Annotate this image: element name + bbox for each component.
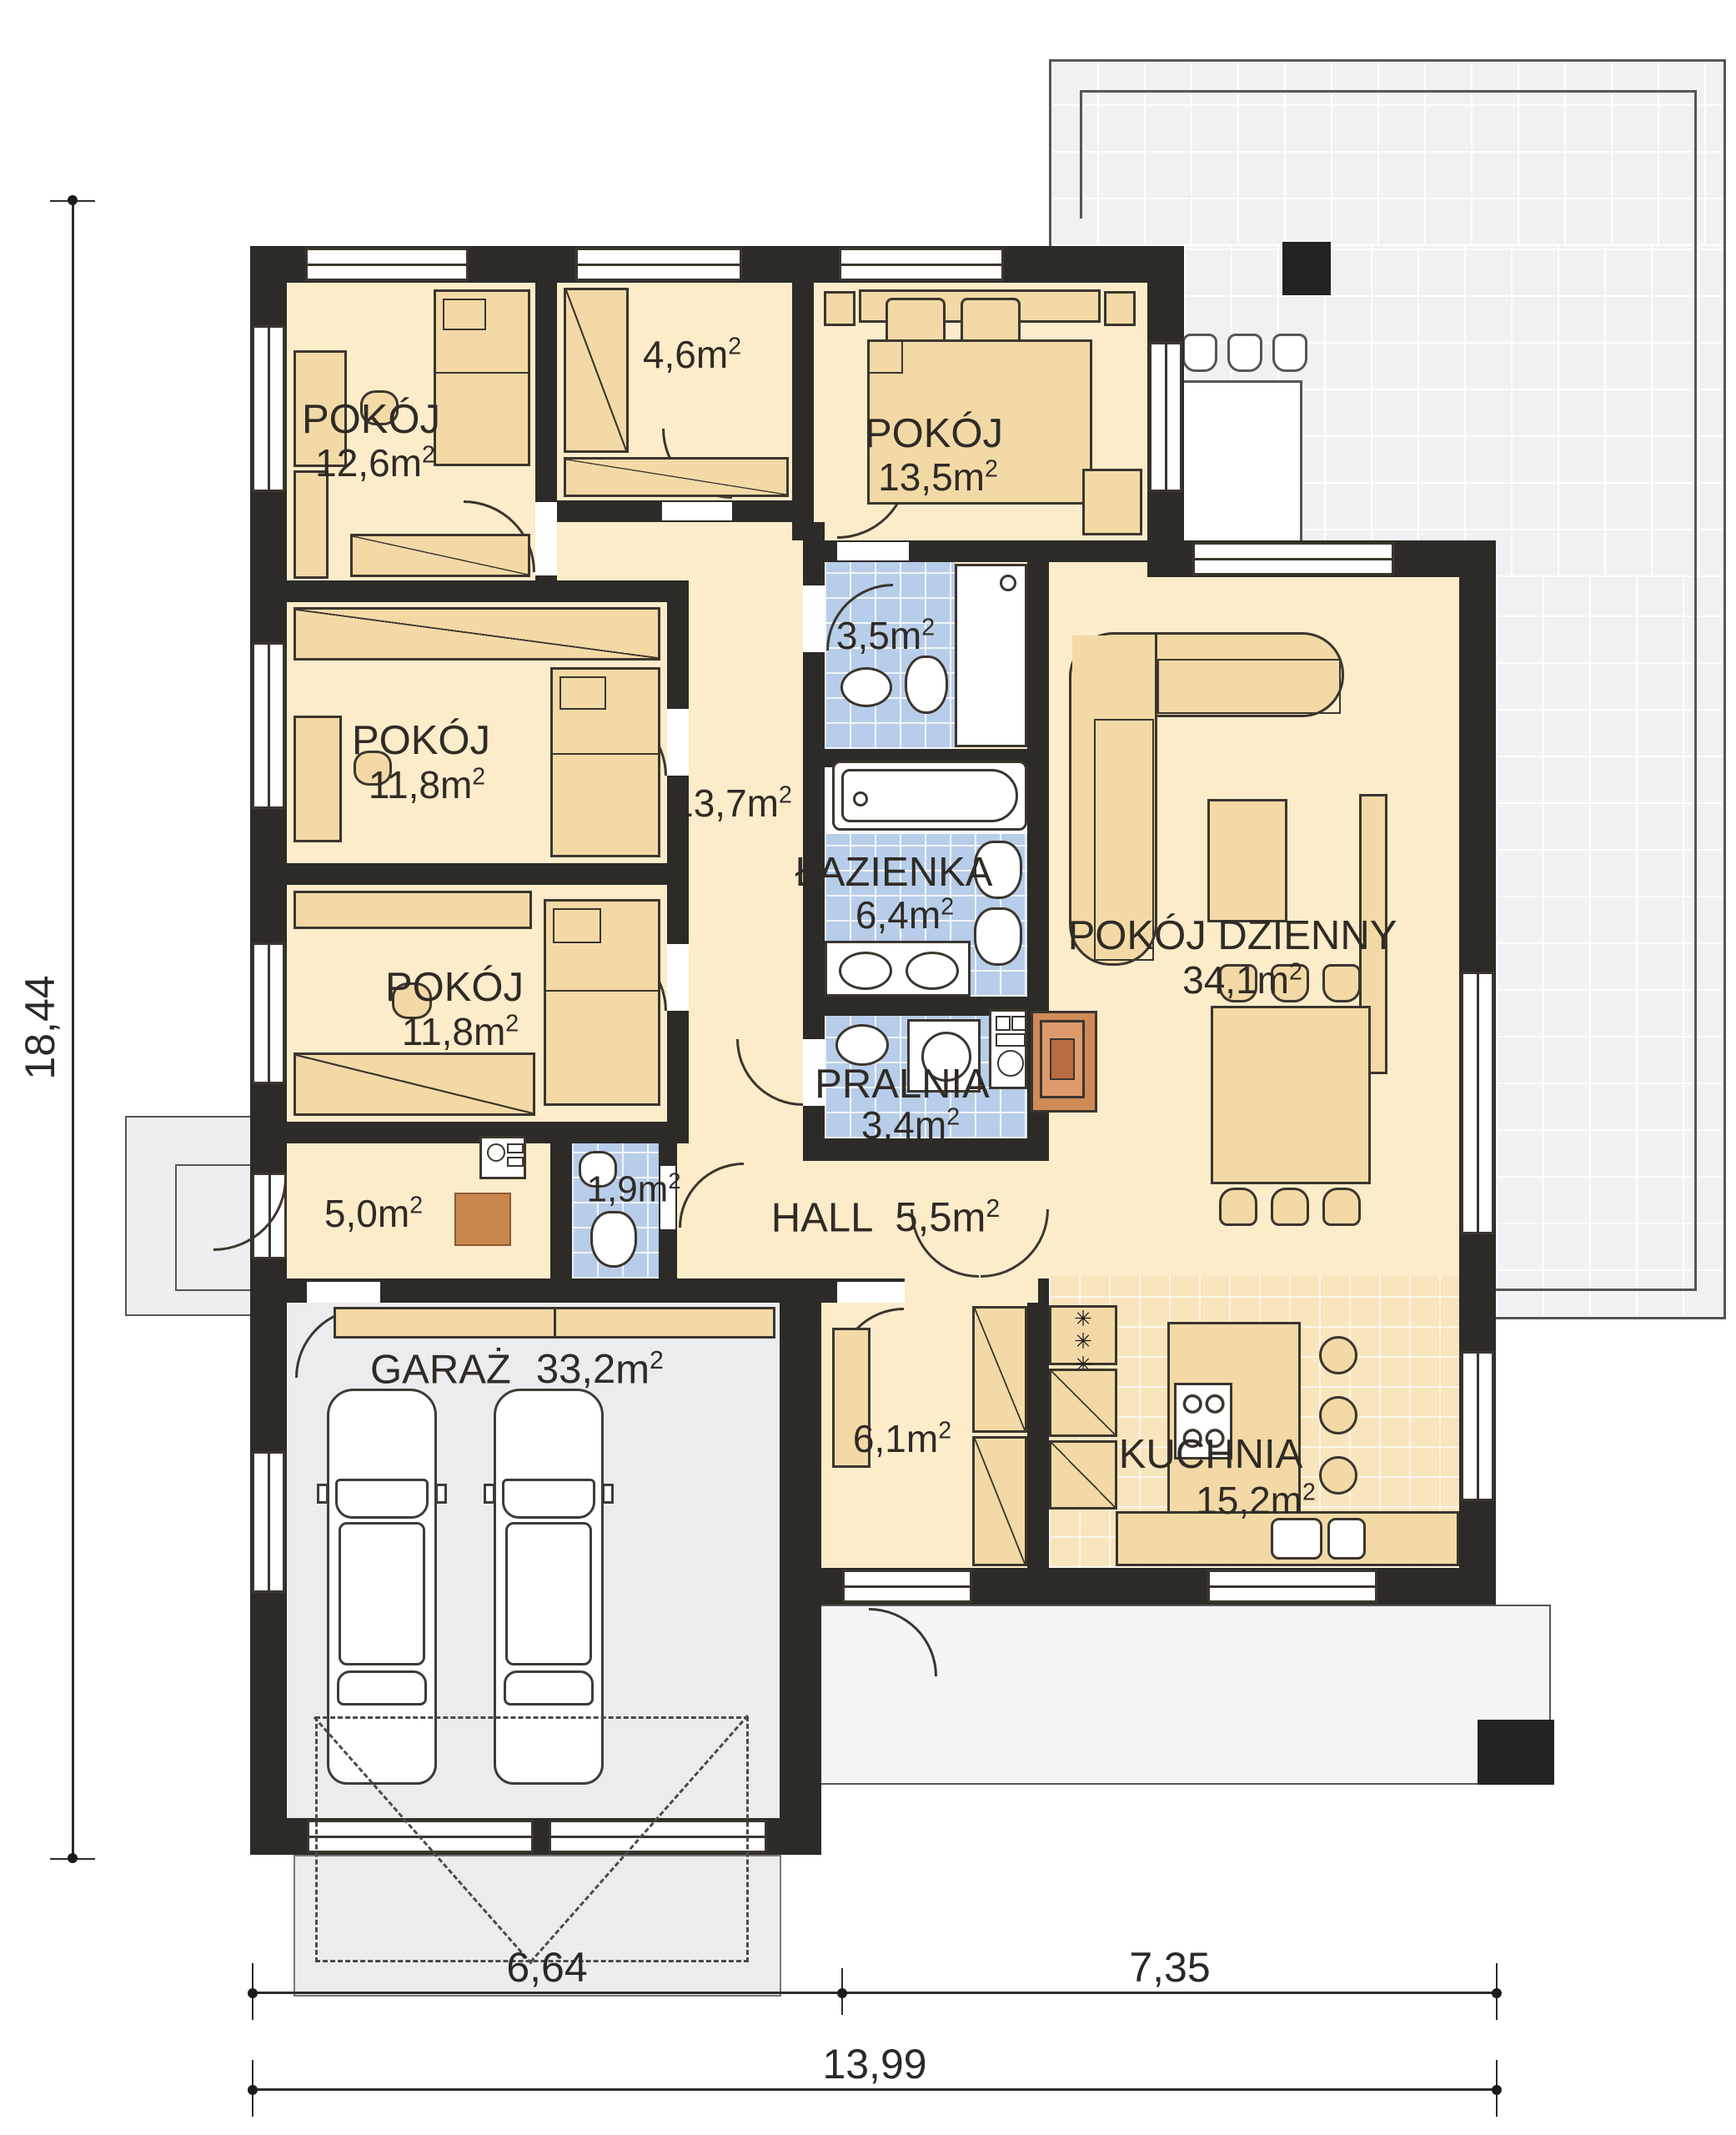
dining-chair [1322,964,1361,1002]
window [252,942,285,1084]
wall-interior [287,580,689,602]
garage-clearance-dashed [315,1716,749,1962]
window [839,248,1004,281]
dim-value-height: 18,44 [16,975,64,1079]
nightstand [824,291,855,326]
terrace-outline [1723,59,1726,1319]
terrace-inner-line [1694,90,1697,1291]
sofa-corner [1072,635,1154,714]
shower [955,564,1027,747]
room-area: 12,6m2 [315,440,435,485]
terrace-chair [1272,334,1307,372]
wall-interior [1027,1303,1049,1568]
terrace-inner-line [1080,90,1697,93]
room-area: 5,0m2 [324,1191,423,1236]
terrace-table [1176,380,1302,554]
washbasin-counter [825,941,971,997]
window [575,248,742,281]
room-label: KUCHNIA [1119,1431,1303,1478]
window [252,1451,285,1593]
room-area: 13,5m2 [878,455,998,500]
window [252,642,285,809]
bed [434,289,530,466]
window [1461,972,1494,1234]
window [305,248,469,281]
terrace-chair [1227,334,1262,372]
dining-table [1211,1006,1371,1184]
bed [550,667,660,857]
room-area: 11,8m2 [402,1009,519,1054]
wardrobe [972,1306,1027,1433]
room-area: 6,1m2 [853,1416,951,1461]
vent-icon: ✳ [1074,1306,1092,1331]
room-area: 3,4m2 [861,1103,960,1148]
patio-block [1478,1720,1554,1785]
room-label: HALL5,5m2 [771,1194,1000,1241]
shelf [294,891,532,929]
door-gap [837,1282,907,1303]
bidet [974,907,1022,966]
fireplace [1031,1011,1097,1113]
terrace [1496,577,1726,1318]
wardrobe [294,607,660,661]
terrace-outline [1496,1317,1726,1319]
room-area: 1,9m2 [587,1168,681,1211]
room-area: 34,1m2 [1182,957,1302,1002]
door-gap [803,585,825,652]
room-area: 13,7m2 [672,781,792,826]
door-gap [662,502,732,520]
window [1207,1570,1377,1603]
dim-line-bottom-2 [252,2088,1498,2091]
nightstand [1104,291,1136,326]
door-gap [837,542,909,560]
dining-chair [1219,1188,1257,1226]
room-label: POKÓJ [865,410,1003,457]
room-label: POKÓJ [352,717,490,764]
laundry-column [989,1009,1027,1089]
dim-dot [68,195,78,205]
terrace-inner-line [1080,90,1082,219]
dim-line-left [72,200,74,1860]
kitchen-tall-unit [1049,1440,1117,1510]
dim-dot [1492,1988,1502,1998]
room-label: ŁAZIENKA [795,849,993,896]
bar-stool [1319,1456,1357,1494]
desk [294,716,342,842]
wardrobe [564,288,629,453]
window [842,1570,972,1603]
dim-value-total-width: 13,99 [822,2040,926,2088]
room-label: POKÓJ [302,396,440,443]
room-label: POKÓJ DZIENNY [1068,912,1397,959]
wall-garage-right [780,1303,821,1818]
wardrobe [564,457,789,497]
desk [294,470,329,579]
dim-dot [1492,2085,1502,2095]
toilet [590,1211,637,1268]
bathtub [832,761,1027,831]
toilet [905,656,948,714]
garage-cabinet [334,1307,775,1339]
bar-stool [1319,1396,1357,1434]
kitchen-sink [1327,1518,1366,1560]
wall-interior [550,1143,572,1278]
floor-plan: ✳ ✳ ✳ POKÓJ 12,6m2 4,6m2 POKÓJ 13,5m2 3,… [0,0,1736,2135]
dim-value-left-width: 6,64 [506,1943,587,1992]
room-area: 3,5m2 [836,613,935,658]
wall-interior [287,863,667,885]
dim-value-right-width: 7,35 [1129,1943,1210,1992]
dim-dot [837,1988,847,1998]
wardrobe [350,534,530,577]
dining-chair [1322,1188,1361,1226]
sofa-cushion [1157,659,1341,714]
window [1461,1351,1494,1501]
bar-stool [1319,1336,1357,1374]
terrace-outline [1049,59,1051,248]
door-gap [307,1282,380,1303]
dim-dot [248,1988,258,1998]
dim-dot [68,1853,78,1863]
dim-dot [248,2085,258,2095]
vent-icon: ✳ [1074,1329,1092,1354]
kitchen-tall-unit: ✳ ✳ ✳ [1049,1305,1117,1365]
window [1149,342,1182,492]
boiler-unit [479,1136,526,1179]
door-gap [667,944,689,1011]
coffee-table [1207,799,1287,922]
room-area: 4,6m2 [643,332,741,377]
wardrobe [972,1436,1027,1566]
terrace-inner-line [1496,1289,1697,1291]
sink [840,667,892,707]
sink [835,1024,889,1066]
terrace-chair [1182,334,1217,372]
room-label: PRALNIA [815,1061,990,1108]
window [252,325,285,492]
room-label: POKÓJ [385,964,524,1011]
terrace-outline [1049,59,1726,62]
room-area: 15,2m2 [1196,1478,1316,1523]
opening-hall-kitchen [905,1278,1038,1303]
dining-chair [1271,1188,1309,1226]
kitchen-tall-unit [1049,1369,1117,1437]
doormat [454,1193,511,1246]
dresser [1082,469,1142,535]
chimney [1282,242,1331,295]
door-gap [535,502,557,575]
terrace-sliding-door [1192,542,1394,575]
door-gap [667,709,689,776]
terrace [1051,61,1726,246]
room-label: GARAŻ33,2m2 [370,1346,664,1393]
room-area: 11,8m2 [369,762,485,807]
kitchen-sink [1271,1518,1322,1560]
bed [544,899,660,1106]
wall-interior [667,602,689,1122]
dim-line-bottom-1 [252,1992,1498,1994]
wardrobe [294,1052,535,1116]
room-area: 6,4m2 [855,892,954,937]
